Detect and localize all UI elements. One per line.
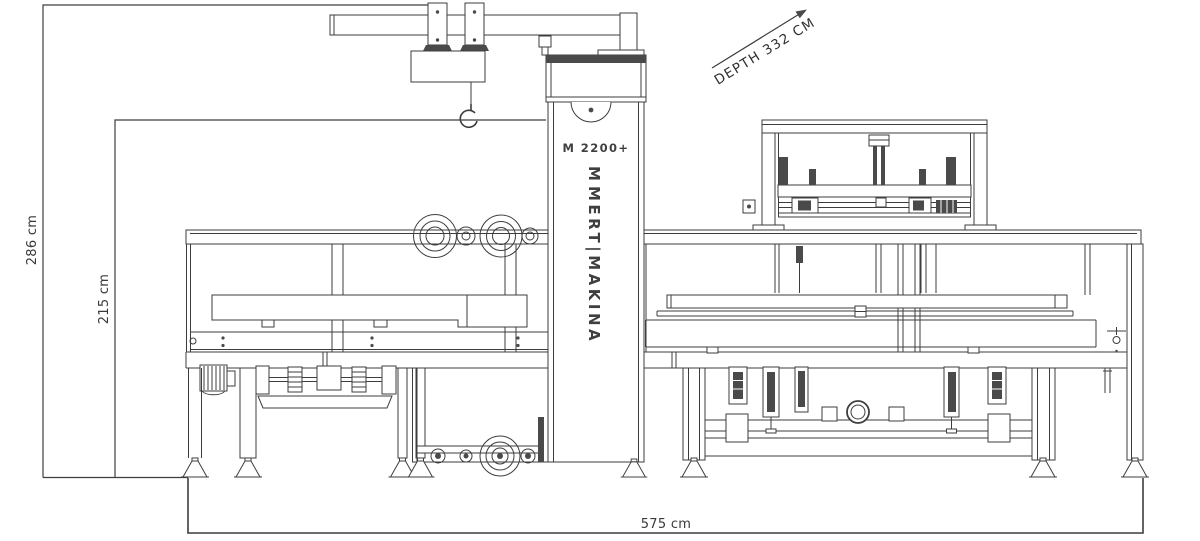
bottom-roller-unit	[412, 368, 548, 476]
brand-logo: M	[585, 166, 603, 181]
pipe-ring	[822, 401, 904, 423]
chain-drive-unit	[200, 365, 396, 408]
press-leg	[974, 120, 987, 225]
drive-sprocket	[288, 367, 302, 392]
machine-feet	[181, 458, 1149, 477]
table-shelf	[190, 332, 548, 350]
column-height-label: 215 cm	[97, 274, 112, 325]
press-platen	[778, 185, 971, 197]
drive-sprocket	[352, 367, 366, 392]
press-guide-rods	[779, 135, 956, 185]
outfeed-shelf	[646, 320, 1127, 353]
crane-rail-elbow	[620, 13, 637, 55]
press-leg	[762, 120, 775, 225]
total-height-label: 286 cm	[25, 215, 40, 266]
dimension-depth: DEPTH 332 CM	[712, 10, 819, 89]
table-top-beam	[186, 230, 1141, 244]
brand-name-label: MERT|MAKINA	[584, 186, 603, 344]
press-top-beam	[762, 120, 987, 133]
width-label: 575 cm	[641, 517, 692, 532]
press-unit	[743, 120, 996, 293]
outfeed-frame	[700, 414, 1040, 456]
dimension-width: 575 cm	[43, 478, 1143, 534]
product-board-left	[212, 295, 527, 327]
product-board-right	[657, 295, 1073, 317]
depth-label: DEPTH 332 CM	[712, 15, 819, 89]
hoist-hook	[460, 104, 477, 127]
technical-drawing-page: 286 cm 215 cm 575 cm DEPTH 332 CM	[0, 0, 1200, 541]
machine-drawing-canvas: 286 cm 215 cm 575 cm DEPTH 332 CM	[0, 0, 1200, 541]
drip-tray	[258, 396, 392, 408]
gearbox	[317, 366, 341, 390]
press-carriages	[792, 198, 957, 213]
hoist-body	[411, 51, 485, 82]
main-column: M 2200+ M MERT|MAKINA	[539, 36, 646, 462]
model-label: M 2200+	[563, 141, 630, 155]
